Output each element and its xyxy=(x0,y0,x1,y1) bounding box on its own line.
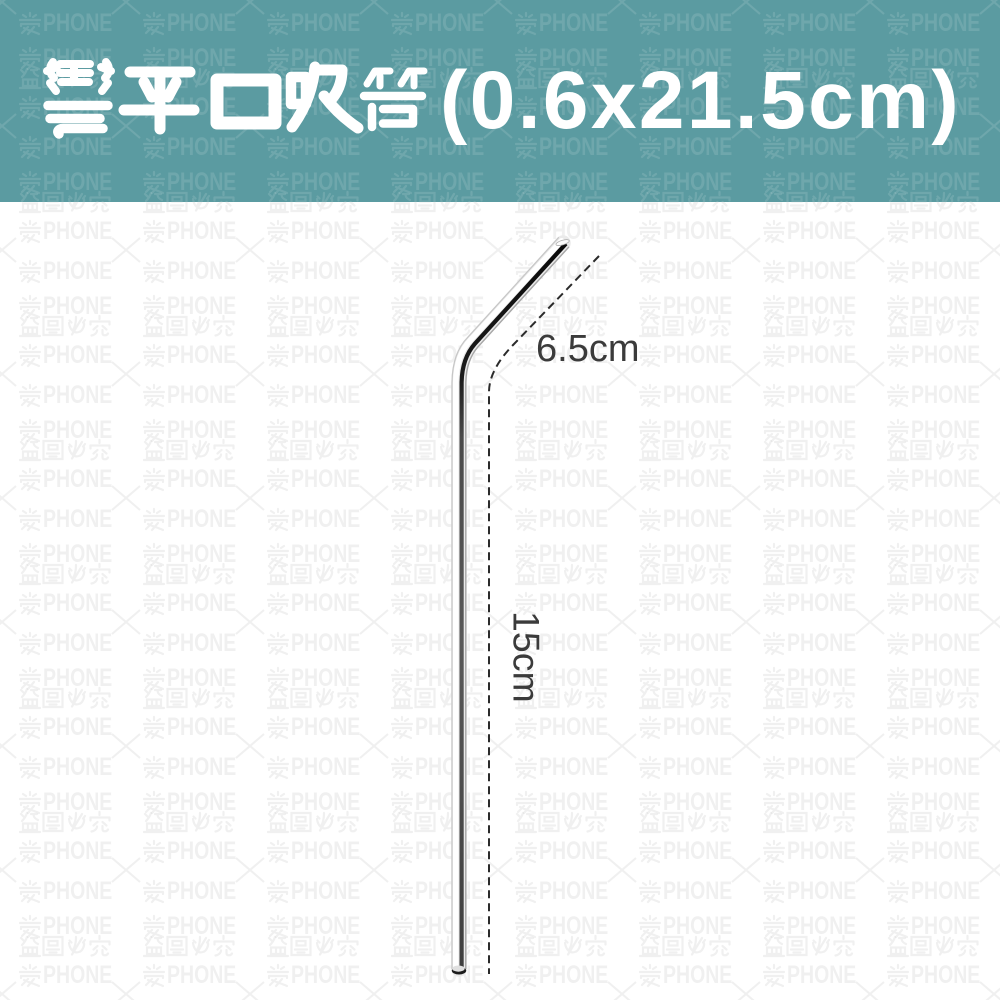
svg-text:(0.6x21.5cm): (0.6x21.5cm) xyxy=(440,55,961,146)
svg-text:15cm: 15cm xyxy=(506,611,548,703)
svg-text:6.5cm: 6.5cm xyxy=(536,328,639,370)
